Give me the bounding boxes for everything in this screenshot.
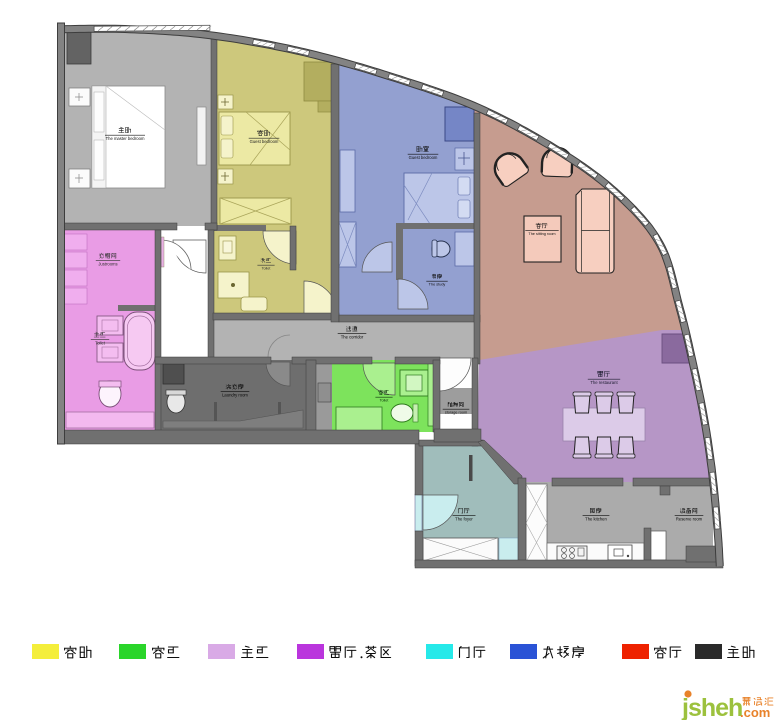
svg-text:The master bedroom: The master bedroom — [106, 136, 145, 141]
svg-text:The restaurant: The restaurant — [590, 380, 618, 385]
svg-text:Toilet: Toilet — [380, 399, 390, 403]
svg-text:Guest bedroom: Guest bedroom — [250, 139, 279, 144]
svg-text:Guest bedroom: Guest bedroom — [409, 155, 438, 160]
svg-text:.com: .com — [740, 705, 770, 720]
svg-text:The foyer: The foyer — [455, 517, 473, 522]
svg-text:storage room: storage room — [445, 411, 467, 415]
svg-text:The study: The study — [429, 283, 446, 287]
svg-text:The sitting room: The sitting room — [528, 232, 555, 236]
svg-text:jsheh: jsheh — [681, 694, 742, 720]
svg-text:The kitchen: The kitchen — [585, 517, 607, 522]
svg-text:Toilet: Toilet — [262, 267, 272, 271]
svg-text:Laundry room: Laundry room — [222, 393, 248, 398]
svg-text:Justrooms: Justrooms — [98, 262, 117, 267]
svg-text:Toilet: Toilet — [95, 341, 106, 346]
svg-text:The corridor: The corridor — [341, 335, 364, 340]
svg-text:Reserve room: Reserve room — [676, 517, 703, 522]
